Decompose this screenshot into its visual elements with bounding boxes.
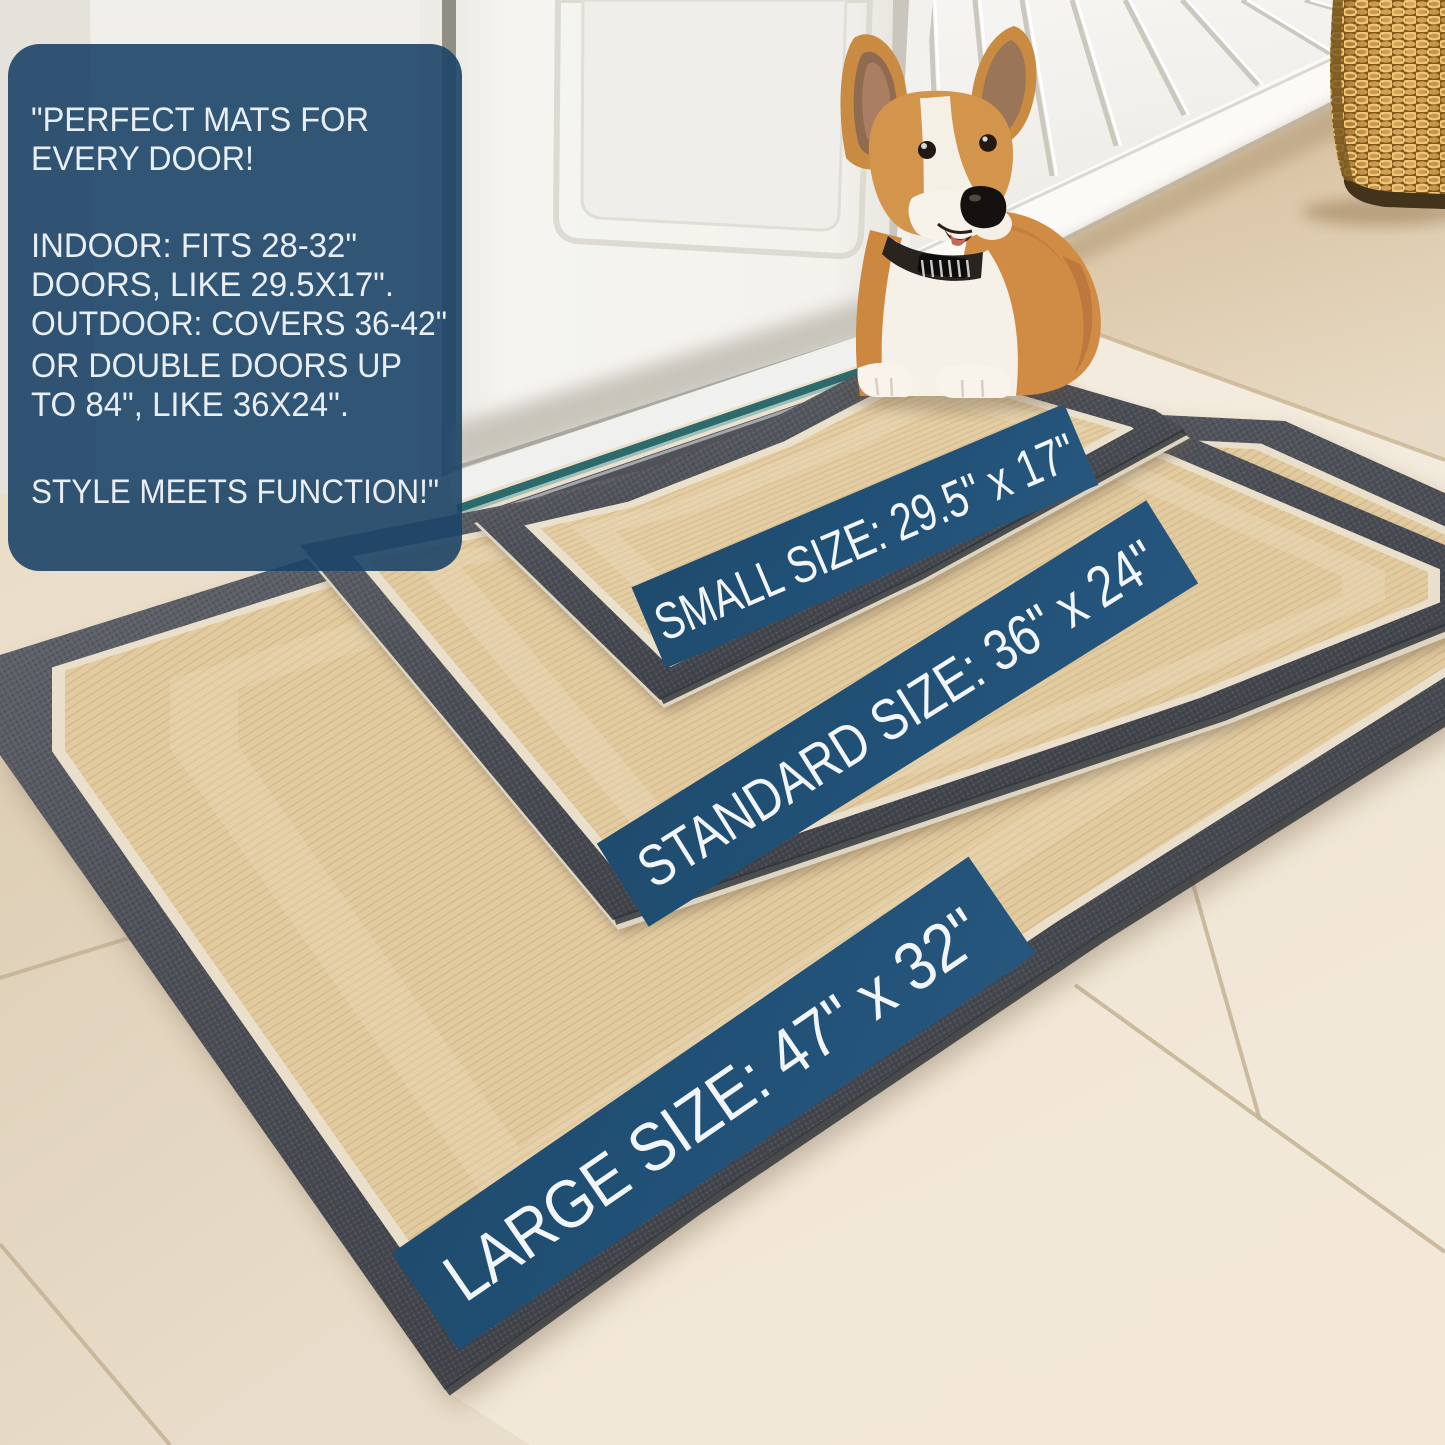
- svg-text:TO 84", LIKE 36X24".: TO 84", LIKE 36X24".: [31, 386, 349, 424]
- svg-text:OR DOUBLE DOORS UP: OR DOUBLE DOORS UP: [31, 347, 402, 385]
- svg-text:INDOOR: FITS 28-32": INDOOR: FITS 28-32": [31, 227, 357, 265]
- svg-text:EVERY DOOR!: EVERY DOOR!: [31, 140, 254, 178]
- svg-text:STYLE MEETS FUNCTION!": STYLE MEETS FUNCTION!": [31, 473, 439, 511]
- svg-text:DOORS, LIKE 29.5X17".: DOORS, LIKE 29.5X17".: [31, 266, 394, 304]
- svg-text:"PERFECT MATS FOR: "PERFECT MATS FOR: [31, 101, 369, 139]
- svg-text:OUTDOOR: COVERS 36-42": OUTDOOR: COVERS 36-42": [31, 305, 447, 343]
